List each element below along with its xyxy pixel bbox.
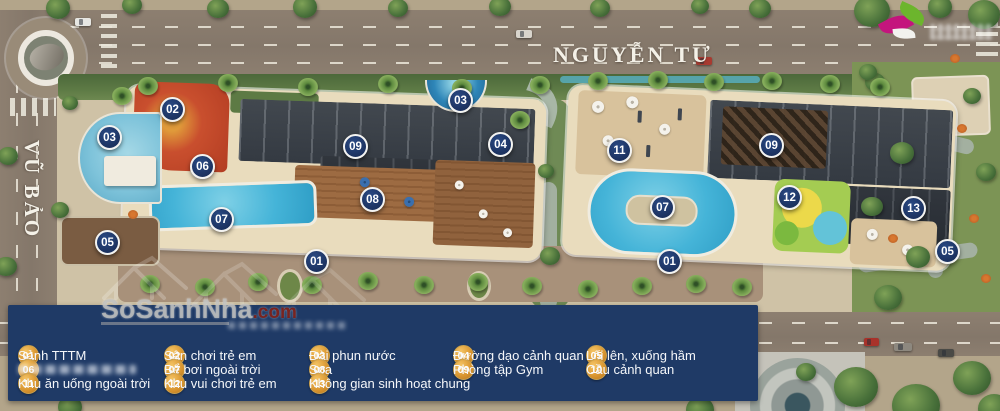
legend-label: Khu vui chơi trẻ em: [164, 376, 277, 391]
legend-label: Không gian sinh hoạt chung: [309, 376, 470, 391]
map-marker-03[interactable]: 03: [97, 125, 122, 150]
map-marker-11[interactable]: 11: [607, 138, 632, 163]
legend-label: Phòng tập Gym: [453, 362, 543, 377]
legend-label: Khu ăn uống ngoài trời: [18, 376, 150, 391]
watermark-tagline-blurred: [228, 322, 348, 329]
map-marker-09[interactable]: 09: [759, 133, 784, 158]
legend-label: Cầu cảnh quan: [586, 362, 674, 377]
legend-label-blurred: [18, 365, 136, 374]
map-marker-03[interactable]: 03: [448, 88, 473, 113]
map-marker-01[interactable]: 01: [304, 249, 329, 274]
watermark-brand: SoSanhNha.com: [101, 294, 297, 325]
map-marker-04[interactable]: 04: [488, 132, 513, 157]
watermark-underline: [101, 322, 229, 325]
logo-text-blurred: [930, 24, 992, 40]
map-marker-05[interactable]: 05: [95, 230, 120, 255]
map-marker-05[interactable]: 05: [935, 239, 960, 264]
map-marker-08[interactable]: 08: [360, 187, 385, 212]
map-marker-02[interactable]: 02: [160, 97, 185, 122]
legend-grid: 01Sảnh TTTM02Sân chơi trẻ em03Đài phun n…: [18, 314, 754, 397]
site-plan-image: NGUYỄN TƯ VŨ BẢO SoSanhNha.com 030502060…: [0, 0, 1000, 411]
map-marker-07[interactable]: 07: [209, 207, 234, 232]
map-marker-07[interactable]: 07: [650, 195, 675, 220]
map-marker-01[interactable]: 01: [657, 249, 682, 274]
map-marker-12[interactable]: 12: [777, 185, 802, 210]
legend-label: Đường dạo cảnh quan: [453, 348, 584, 363]
map-marker-09[interactable]: 09: [343, 134, 368, 159]
map-marker-13[interactable]: 13: [901, 196, 926, 221]
map-marker-06[interactable]: 06: [190, 154, 215, 179]
